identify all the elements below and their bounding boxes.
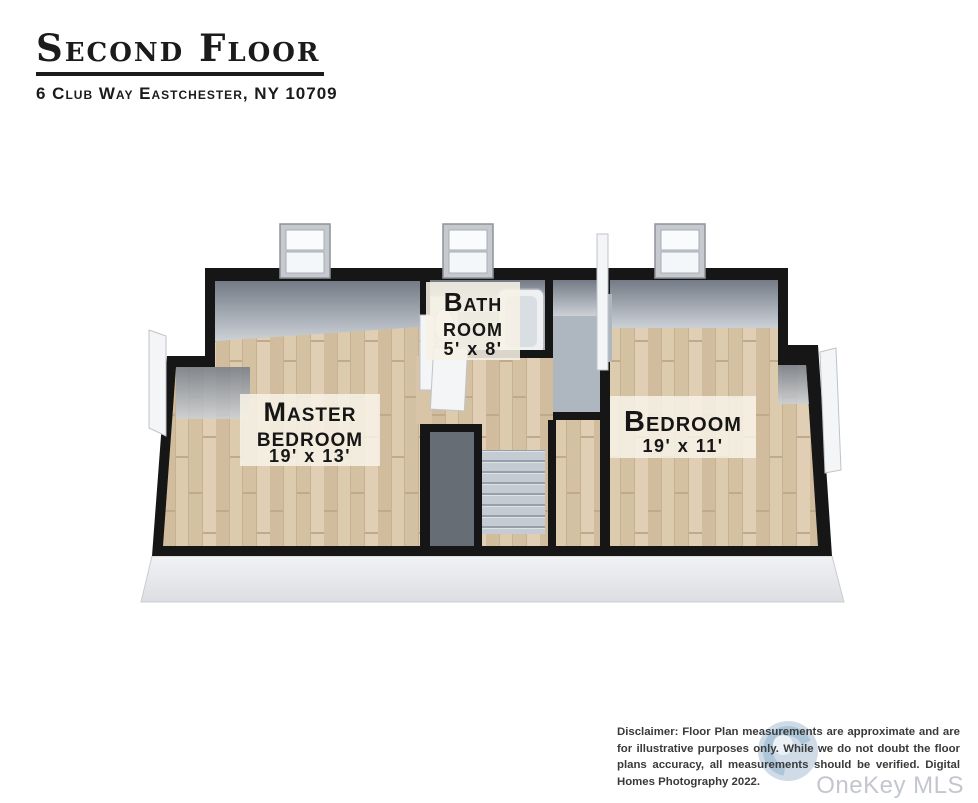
stairs — [481, 450, 545, 534]
bathroom-dimensions: 5' x 8' — [443, 339, 502, 359]
door-panel — [149, 330, 166, 436]
bathroom-label: Bath room 5' x 8' — [426, 282, 520, 360]
bedroom-name-line1: Bedroom — [624, 406, 742, 438]
closet-floor — [430, 432, 474, 546]
bedroom-dimensions: 19' x 11' — [642, 436, 723, 456]
bedroom-label: Bedroom 19' x 11' — [610, 396, 756, 458]
baseboard — [141, 556, 844, 602]
floor-plan-rendering: Bath room 5' x 8' Master bedroom 19' x 1… — [0, 0, 978, 803]
door-panel — [597, 234, 608, 370]
onekey-mls-watermark: OneKey MLS — [816, 772, 964, 800]
window-icon — [443, 224, 493, 278]
master-dimensions: 19' x 13' — [269, 446, 351, 466]
master-bedroom-label: Master bedroom 19' x 13' — [240, 394, 380, 466]
floor-plan-page: Second Floor 6 Club Way Eastchester, NY … — [0, 0, 978, 803]
window-icon — [655, 224, 705, 278]
bathroom-name-line2: room — [443, 312, 503, 342]
window-icon — [280, 224, 330, 278]
